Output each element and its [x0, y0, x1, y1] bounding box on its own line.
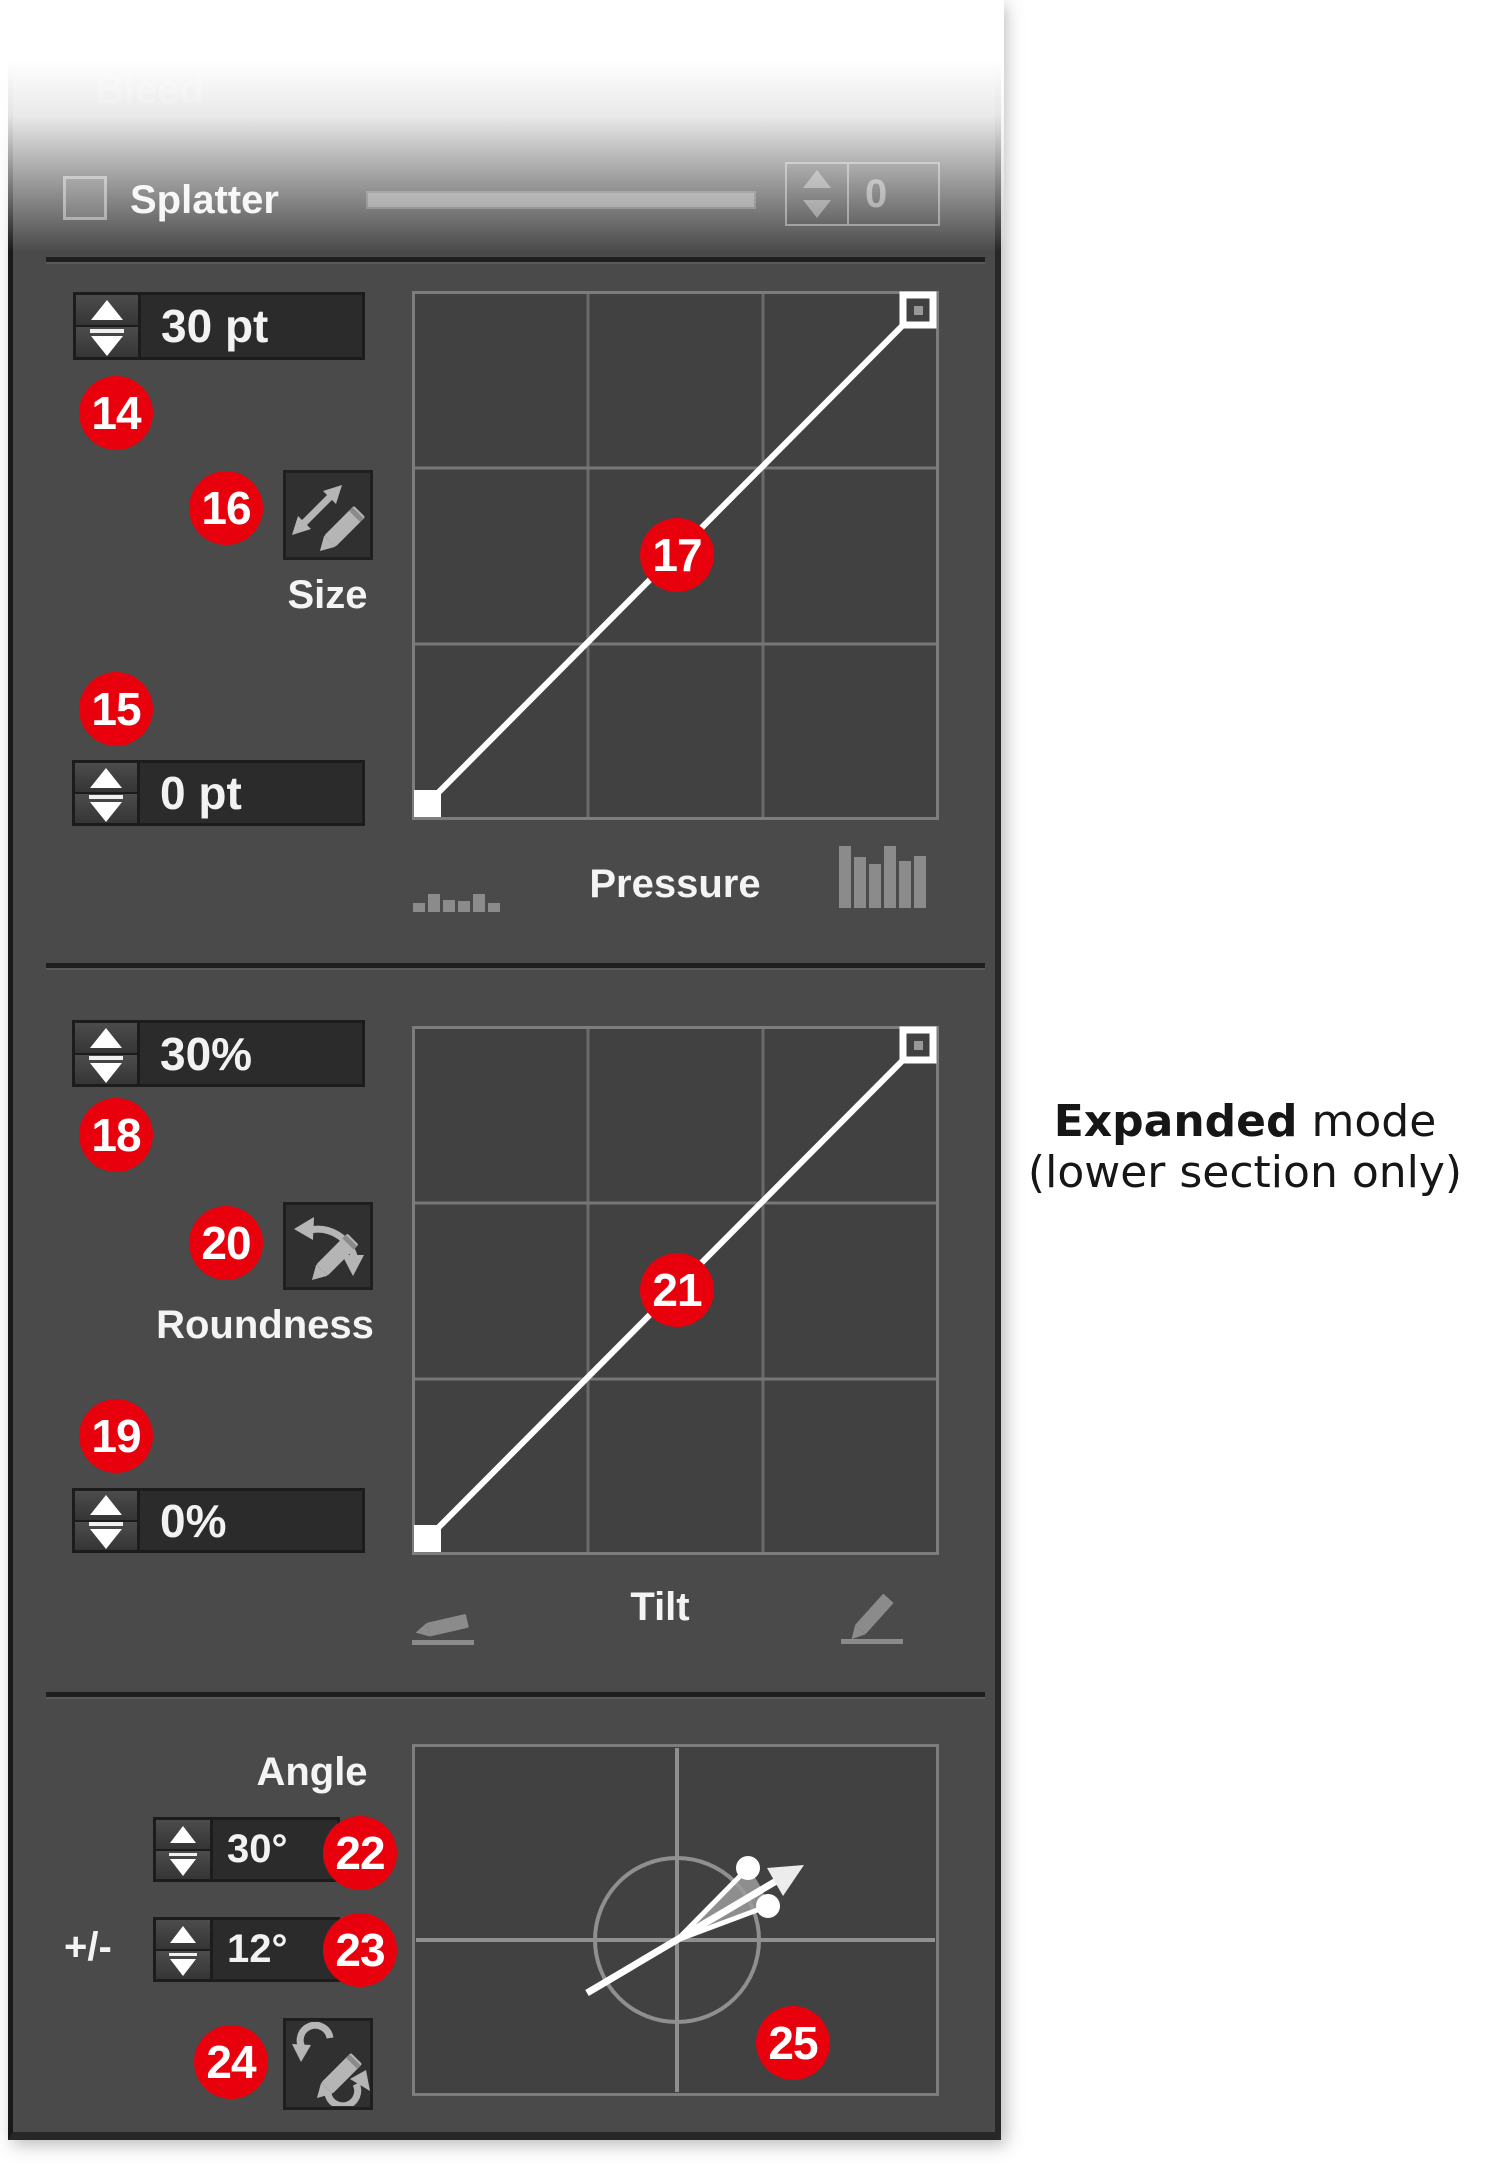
splatter-stepper[interactable]: 0	[785, 162, 940, 226]
stepper-up-icon[interactable]	[75, 1491, 137, 1522]
angle-variance-stepper[interactable]: 12°	[153, 1917, 340, 1982]
dial-variance-dot[interactable]	[736, 1856, 760, 1880]
size-max-value[interactable]: 30 pt	[141, 295, 362, 357]
stepper-down-icon[interactable]	[75, 1522, 137, 1551]
angle-dial-graph[interactable]	[412, 1744, 939, 2096]
tilt-max-pen-icon	[841, 1578, 905, 1646]
section-divider	[46, 963, 985, 970]
splatter-stepper-up-icon[interactable]	[787, 164, 847, 194]
angle-dynamics-button[interactable]	[283, 2018, 373, 2110]
angle-variance-value[interactable]: 12°	[213, 1920, 337, 1979]
stepper-up-icon[interactable]	[75, 1023, 137, 1055]
angle-rotate-pencil-icon	[286, 2022, 370, 2106]
curve-start-node[interactable]	[414, 790, 441, 817]
callout-14: 14	[79, 376, 153, 450]
callout-21: 21	[640, 1253, 714, 1327]
roundness-rotate-pencil-icon	[286, 1204, 370, 1288]
size-min-value[interactable]: 0 pt	[140, 763, 362, 823]
callout-24: 24	[194, 2025, 268, 2099]
section-divider	[46, 257, 985, 264]
callout-23: 23	[323, 1913, 397, 1987]
roundness-max-value[interactable]: 30%	[140, 1023, 362, 1084]
section-divider	[46, 1692, 985, 1699]
splatter-label: Splatter	[130, 178, 279, 223]
roundness-min-stepper[interactable]: 0%	[72, 1488, 365, 1553]
stepper-up-icon[interactable]	[156, 1820, 210, 1851]
stepper-up-icon[interactable]	[75, 763, 137, 794]
size-arrows-pencil-icon	[286, 473, 370, 557]
callout-22: 22	[323, 1816, 397, 1890]
tilt-label: Tilt	[545, 1585, 775, 1630]
pressure-label: Pressure	[545, 862, 805, 907]
stepper-down-icon[interactable]	[76, 327, 138, 357]
pressure-min-bars-icon	[413, 886, 505, 912]
callout-18: 18	[79, 1098, 153, 1172]
roundness-label: Roundness	[150, 1303, 380, 1348]
pressure-max-bars-icon	[839, 844, 931, 908]
stepper-down-icon[interactable]	[75, 794, 137, 823]
stepper-up-icon[interactable]	[76, 295, 138, 327]
stepper-down-icon[interactable]	[75, 1055, 137, 1085]
callout-16: 16	[189, 471, 263, 545]
callout-20: 20	[189, 1206, 263, 1280]
annotation-line-2: (lower section only)	[1010, 1147, 1480, 1198]
roundness-max-stepper[interactable]: 30%	[72, 1020, 365, 1087]
expanded-mode-annotation: Expanded mode (lower section only)	[1010, 1096, 1480, 1198]
size-label: Size	[255, 573, 400, 618]
stepper-down-icon[interactable]	[156, 1851, 210, 1880]
dial-variance-dot[interactable]	[756, 1894, 780, 1918]
callout-15: 15	[79, 672, 153, 746]
angle-label: Angle	[252, 1750, 372, 1795]
roundness-dynamics-button[interactable]	[283, 1202, 373, 1290]
splatter-checkbox[interactable]	[63, 176, 107, 220]
splatter-value[interactable]: 0	[849, 164, 938, 224]
plus-minus-label: +/-	[64, 1925, 112, 1970]
angle-value[interactable]: 30°	[213, 1820, 337, 1879]
splatter-slider[interactable]	[366, 191, 756, 209]
callout-17: 17	[640, 518, 714, 592]
callout-19: 19	[79, 1399, 153, 1473]
callout-25: 25	[756, 2006, 830, 2080]
size-min-stepper[interactable]: 0 pt	[72, 760, 365, 826]
size-max-stepper[interactable]: 30 pt	[73, 292, 365, 360]
bleed-label: Bleed	[95, 68, 204, 113]
splatter-stepper-down-icon[interactable]	[787, 194, 847, 224]
curve-start-node[interactable]	[414, 1525, 441, 1552]
size-dynamics-button[interactable]	[283, 470, 373, 560]
angle-stepper[interactable]: 30°	[153, 1817, 340, 1882]
roundness-min-value[interactable]: 0%	[140, 1491, 362, 1550]
annotation-line-1: Expanded mode	[1010, 1096, 1480, 1147]
tilt-min-pen-icon	[412, 1598, 476, 1646]
stepper-up-icon[interactable]	[156, 1920, 210, 1951]
stepper-down-icon[interactable]	[156, 1951, 210, 1980]
